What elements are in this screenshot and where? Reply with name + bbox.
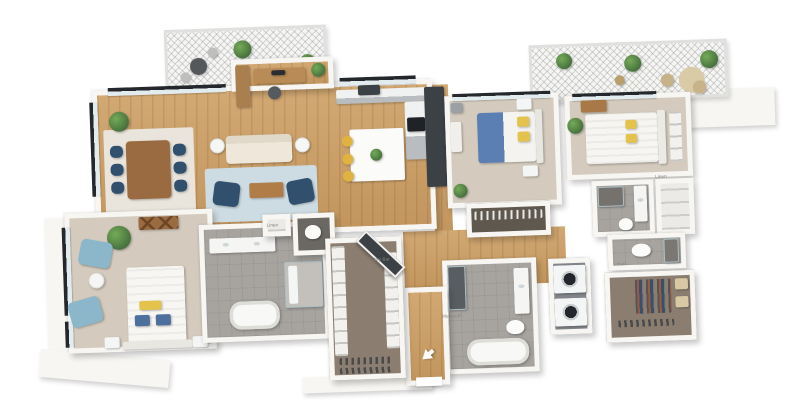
pillow — [626, 134, 637, 143]
bathtub-2 — [467, 338, 530, 366]
vanity-mudroom — [513, 268, 530, 314]
dresser-2 — [450, 122, 462, 152]
potted-plant — [624, 55, 642, 73]
balcony-chair — [180, 72, 190, 82]
ladder-shelf — [669, 111, 683, 161]
label-mudroom: Mudroom — [442, 314, 462, 319]
balcony-bistro-table — [190, 58, 208, 76]
pillow — [517, 116, 529, 126]
armchair — [212, 181, 241, 208]
outer-wall-slab-bottom-left — [39, 349, 171, 388]
toilet-master — [305, 225, 321, 240]
label-linen-master: Linen — [267, 223, 279, 228]
label-dry-bar: Dry Bar — [374, 257, 390, 262]
balcony-chair — [207, 47, 217, 57]
potted-plant — [556, 53, 573, 70]
potted-plant — [233, 40, 252, 59]
nightstand — [523, 165, 538, 177]
label-linen-hall: Linen — [614, 262, 626, 267]
coffee-table — [249, 182, 284, 198]
apartment-3d-plan: Linen Dry Bar Mudroom Linen Linen — [0, 0, 800, 410]
storage-box — [675, 278, 688, 289]
shower-3 — [597, 186, 624, 207]
entry-door — [416, 377, 442, 387]
pillow — [518, 131, 530, 141]
pillow — [156, 314, 171, 326]
toilet-3 — [619, 218, 633, 230]
shower-4 — [663, 238, 679, 263]
dining-chair — [110, 146, 123, 158]
master-dresser — [138, 216, 178, 230]
freestanding-tub — [229, 300, 280, 330]
dining-chair — [111, 182, 124, 194]
potted-plant — [700, 50, 719, 69]
entry — [403, 286, 450, 385]
storage-box — [675, 296, 688, 307]
wall-oven — [358, 85, 380, 96]
toilet-mudroom — [506, 320, 524, 335]
double-vanity — [209, 236, 275, 253]
dining-chair — [174, 179, 187, 191]
sofa — [225, 134, 292, 164]
pillow — [625, 120, 636, 129]
dining-chair — [110, 164, 123, 176]
dining-chair — [173, 143, 186, 155]
monitor — [271, 70, 285, 75]
balcony-side-table — [615, 75, 625, 85]
floor-plan-scene: Linen Dry Bar Mudroom Linen Linen — [0, 0, 800, 410]
dining-chair — [173, 161, 186, 173]
shower-bench — [288, 266, 298, 304]
laundry-basket — [450, 103, 462, 113]
dining-table — [126, 140, 172, 200]
toilet-4 — [632, 243, 651, 257]
pillow — [135, 315, 150, 327]
wicker-chair — [661, 73, 674, 86]
nightstand — [516, 98, 531, 110]
shower-mudroom — [447, 266, 467, 311]
bed-3 — [585, 112, 659, 164]
bookshelf — [235, 65, 250, 107]
washer — [553, 265, 586, 294]
dresser-3 — [580, 100, 606, 113]
dryer — [554, 298, 587, 327]
master-armchair — [77, 238, 113, 269]
vanity-3 — [633, 185, 647, 221]
linen-closet — [655, 178, 695, 235]
hanging-clothes — [635, 279, 672, 314]
throw-blanket — [139, 300, 161, 310]
armchair — [285, 177, 315, 206]
cooktop — [407, 117, 425, 132]
nightstand-lamp — [104, 337, 119, 349]
wicker-chair — [693, 80, 706, 93]
label-linen-bedroom3: Linen — [655, 175, 667, 180]
